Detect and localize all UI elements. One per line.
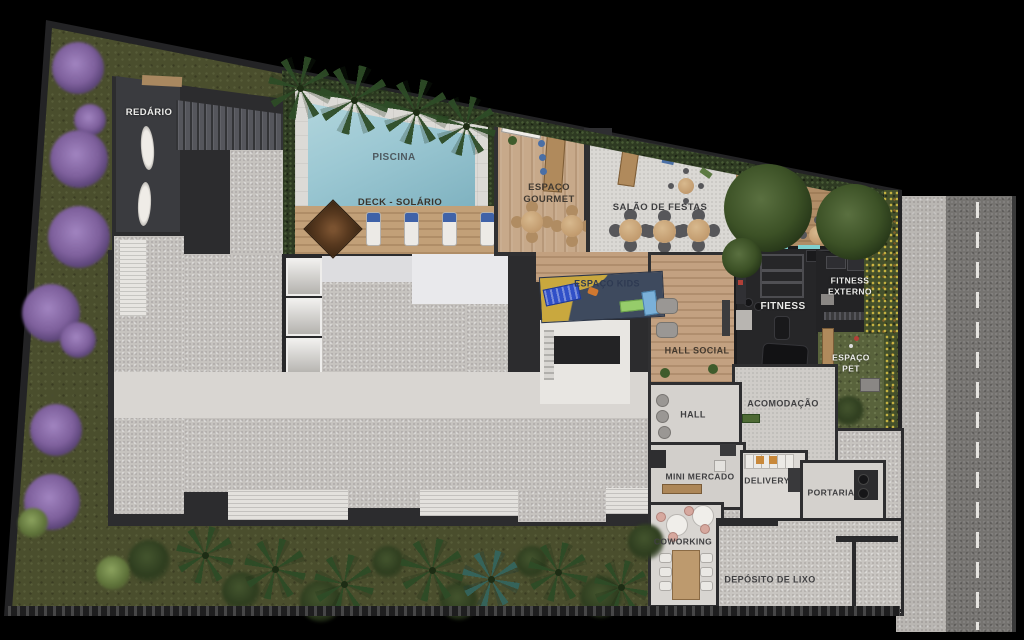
purple-tree bbox=[60, 322, 96, 358]
palm-tree bbox=[436, 96, 496, 156]
floor-plan: REDÁRIO PISCINA DECK - SOLÁRIO ESPAÇO GO… bbox=[0, 0, 1024, 640]
deposito-divider-wall bbox=[852, 538, 856, 606]
desk-chair bbox=[858, 474, 869, 485]
coworking-chair bbox=[700, 581, 713, 591]
pet-toy-red bbox=[854, 336, 859, 341]
roof-slab bbox=[184, 254, 282, 372]
coworking-chair bbox=[684, 506, 694, 516]
walkway-strip bbox=[120, 240, 146, 316]
wood-bench-redario bbox=[142, 75, 182, 87]
label-redario: REDÁRIO bbox=[126, 107, 173, 119]
coworking-chair bbox=[700, 524, 710, 534]
stair-void bbox=[554, 336, 620, 364]
sun-lounger bbox=[404, 212, 419, 246]
mercado-shelf bbox=[662, 484, 702, 494]
palm-tree bbox=[314, 554, 374, 614]
deposito-step-wall bbox=[836, 536, 898, 542]
roof-slab bbox=[230, 150, 290, 254]
label-hall: HALL bbox=[680, 409, 706, 420]
louver-roof bbox=[420, 490, 518, 516]
pet-bowl bbox=[849, 344, 853, 348]
roof-step bbox=[348, 490, 420, 508]
palm-tree bbox=[244, 538, 306, 600]
red-accent bbox=[738, 280, 743, 285]
coworking-chair bbox=[700, 553, 713, 563]
planter bbox=[742, 414, 760, 423]
road-center-dashed-line bbox=[976, 202, 979, 630]
party-table bbox=[687, 219, 710, 242]
palm-tree bbox=[400, 538, 464, 602]
garden-bush bbox=[128, 540, 170, 582]
dining-table bbox=[561, 215, 583, 237]
parcel-box bbox=[756, 456, 764, 464]
dining-table bbox=[521, 211, 543, 233]
island-stool-blue bbox=[540, 168, 547, 175]
label-coworking: COWORKING bbox=[654, 537, 712, 548]
tree-canopy bbox=[722, 238, 762, 278]
stair-steps bbox=[544, 330, 554, 380]
island-stool-blue bbox=[538, 140, 545, 147]
road bbox=[946, 196, 1014, 632]
coworking-chair bbox=[659, 553, 672, 563]
label-portaria: PORTARIA bbox=[808, 488, 855, 499]
area-deposito-de-lixo bbox=[716, 518, 904, 612]
coworking-chair bbox=[659, 581, 672, 591]
squat-rack bbox=[760, 254, 804, 298]
label-hall-social: HALL SOCIAL bbox=[665, 345, 730, 356]
palm-tree-teal bbox=[462, 550, 520, 608]
roof-band bbox=[412, 252, 508, 304]
palm-tree bbox=[528, 542, 588, 602]
label-fitness: FITNESS bbox=[760, 301, 805, 314]
purple-tree bbox=[30, 404, 82, 456]
sun-lounger bbox=[366, 212, 381, 246]
coworking-chair bbox=[656, 512, 666, 522]
party-table bbox=[653, 220, 676, 243]
louver-roof bbox=[228, 490, 348, 520]
roof-band bbox=[322, 256, 414, 282]
coworking-long-table bbox=[672, 550, 700, 600]
plant bbox=[708, 364, 718, 374]
palm-tree bbox=[176, 526, 234, 584]
delivery-cabinet bbox=[788, 468, 800, 492]
mercado-fridge bbox=[720, 444, 736, 456]
sun-lounger bbox=[480, 212, 495, 246]
fitness-sink bbox=[736, 310, 752, 330]
armchair bbox=[656, 298, 678, 314]
roof-slab bbox=[466, 302, 508, 372]
purple-tree bbox=[50, 130, 108, 188]
pet-kennel bbox=[860, 378, 880, 392]
skylight bbox=[286, 338, 322, 376]
purple-tree bbox=[52, 42, 104, 94]
armchair bbox=[656, 322, 678, 338]
label-espaco-kids: ESPAÇO KIDS bbox=[574, 278, 640, 289]
palm-tree bbox=[319, 65, 389, 135]
island-stool-blue bbox=[539, 154, 546, 161]
party-table bbox=[619, 219, 642, 242]
coworking-chair bbox=[700, 567, 713, 577]
skylight bbox=[286, 258, 322, 296]
externo-bench bbox=[824, 312, 866, 320]
sun-lounger bbox=[442, 212, 457, 246]
label-espaco-pet: ESPAÇO PET bbox=[828, 352, 874, 373]
label-salao-de-festas: SALÃO DE FESTAS bbox=[613, 202, 708, 214]
label-delivery: DELIVERY bbox=[744, 476, 789, 487]
label-deposito-de-lixo: DEPÓSITO DE LIXO bbox=[724, 574, 815, 585]
label-espaco-gourmet: ESPAÇO GOURMET bbox=[520, 182, 578, 206]
roof-step bbox=[518, 490, 606, 522]
lounge-table bbox=[678, 178, 694, 194]
mercado-stand bbox=[714, 460, 726, 472]
plant bbox=[660, 368, 670, 378]
gym-bench bbox=[774, 316, 790, 340]
garden-bush-light bbox=[18, 508, 48, 538]
gourmet-plant bbox=[508, 136, 517, 145]
mercado-counter bbox=[650, 450, 666, 468]
parcel-box bbox=[769, 456, 777, 464]
coworking-chair bbox=[659, 567, 672, 577]
pet-bush bbox=[834, 396, 864, 426]
deposito-door-wall bbox=[718, 518, 778, 526]
hall-social-sideboard bbox=[722, 300, 730, 336]
desk-chair bbox=[858, 488, 869, 499]
bottom-perimeter-wall bbox=[8, 606, 900, 616]
label-piscina: PISCINA bbox=[372, 152, 415, 165]
purple-tree bbox=[48, 206, 110, 268]
pouf bbox=[656, 410, 669, 423]
tree-canopy bbox=[816, 184, 892, 260]
fitness-glass-accent bbox=[798, 245, 820, 249]
road-curb bbox=[1012, 196, 1016, 632]
roof-slab-main bbox=[184, 418, 662, 492]
pouf bbox=[656, 394, 669, 407]
garden-bush-light bbox=[96, 556, 130, 590]
label-mini-mercado: MINI MERCADO bbox=[665, 472, 734, 483]
label-acomodacao: ACOMODAÇÃO bbox=[747, 398, 819, 409]
label-fitness-externo: FITNESS EXTERNO bbox=[824, 275, 876, 296]
label-deck-solario: DECK - SOLÁRIO bbox=[358, 197, 442, 209]
pouf bbox=[658, 426, 671, 439]
skylight bbox=[286, 298, 322, 336]
